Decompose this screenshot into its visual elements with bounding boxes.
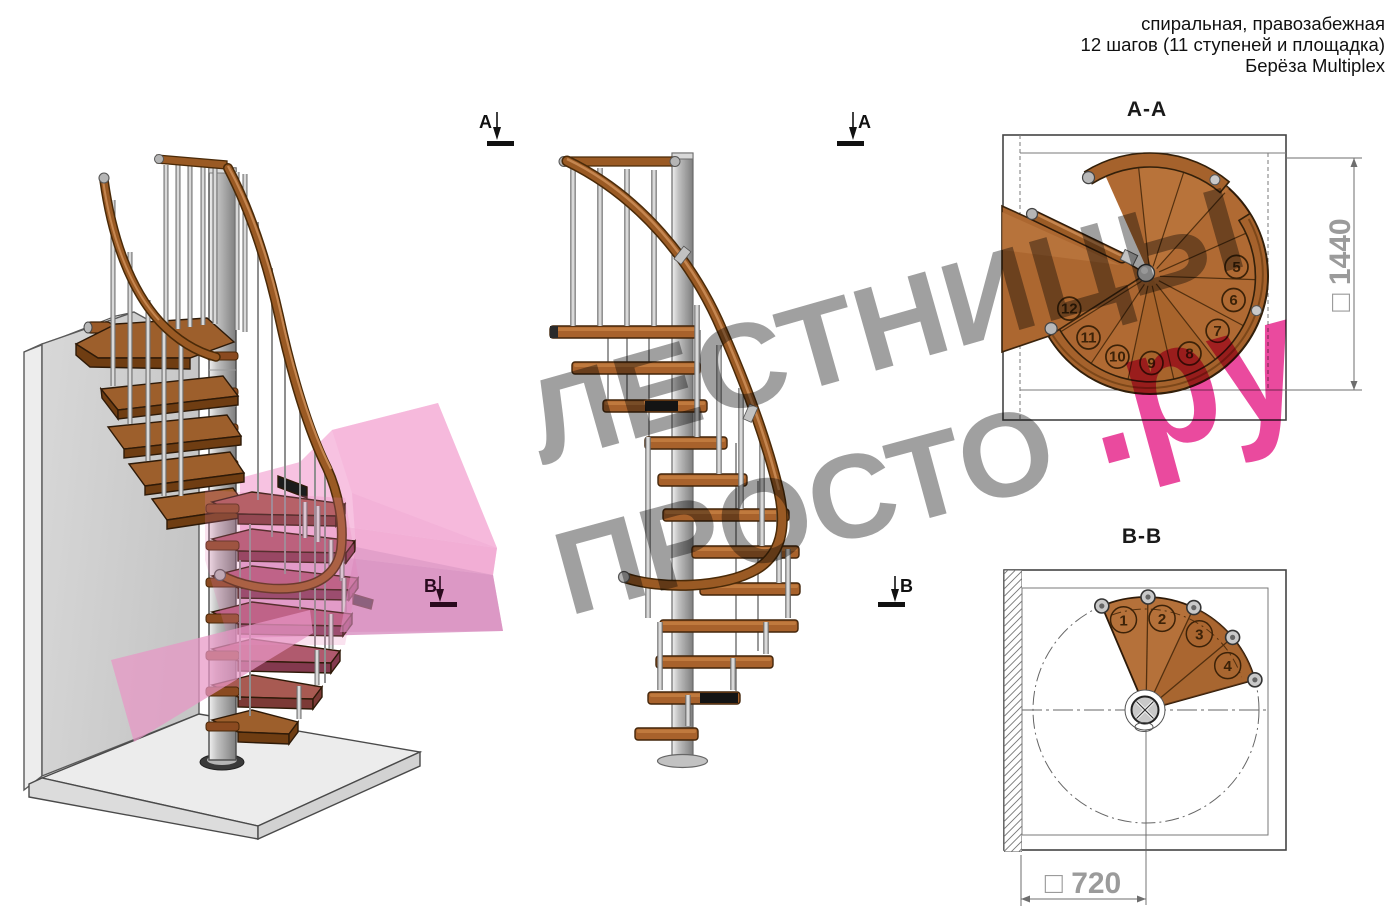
- svg-text:А: А: [858, 112, 871, 132]
- svg-text:□ 720: □ 720: [1045, 867, 1122, 900]
- svg-text:4: 4: [1224, 658, 1233, 675]
- svg-text:В-В: В-В: [1122, 525, 1162, 548]
- svg-text:спиральная, правозабежная: спиральная, правозабежная: [1141, 13, 1385, 34]
- svg-text:В: В: [424, 576, 437, 596]
- svg-text:2: 2: [1158, 611, 1166, 628]
- svg-text:□ 1440: □ 1440: [1324, 218, 1357, 311]
- svg-text:А: А: [479, 112, 492, 132]
- svg-text:1: 1: [1119, 612, 1127, 629]
- svg-text:В: В: [900, 576, 913, 596]
- svg-text:12 шагов (11 ступеней и площад: 12 шагов (11 ступеней и площадка): [1081, 34, 1385, 55]
- svg-text:Берёза Multiplex: Берёза Multiplex: [1245, 55, 1386, 76]
- svg-text:А-А: А-А: [1127, 98, 1167, 121]
- svg-text:3: 3: [1195, 626, 1203, 643]
